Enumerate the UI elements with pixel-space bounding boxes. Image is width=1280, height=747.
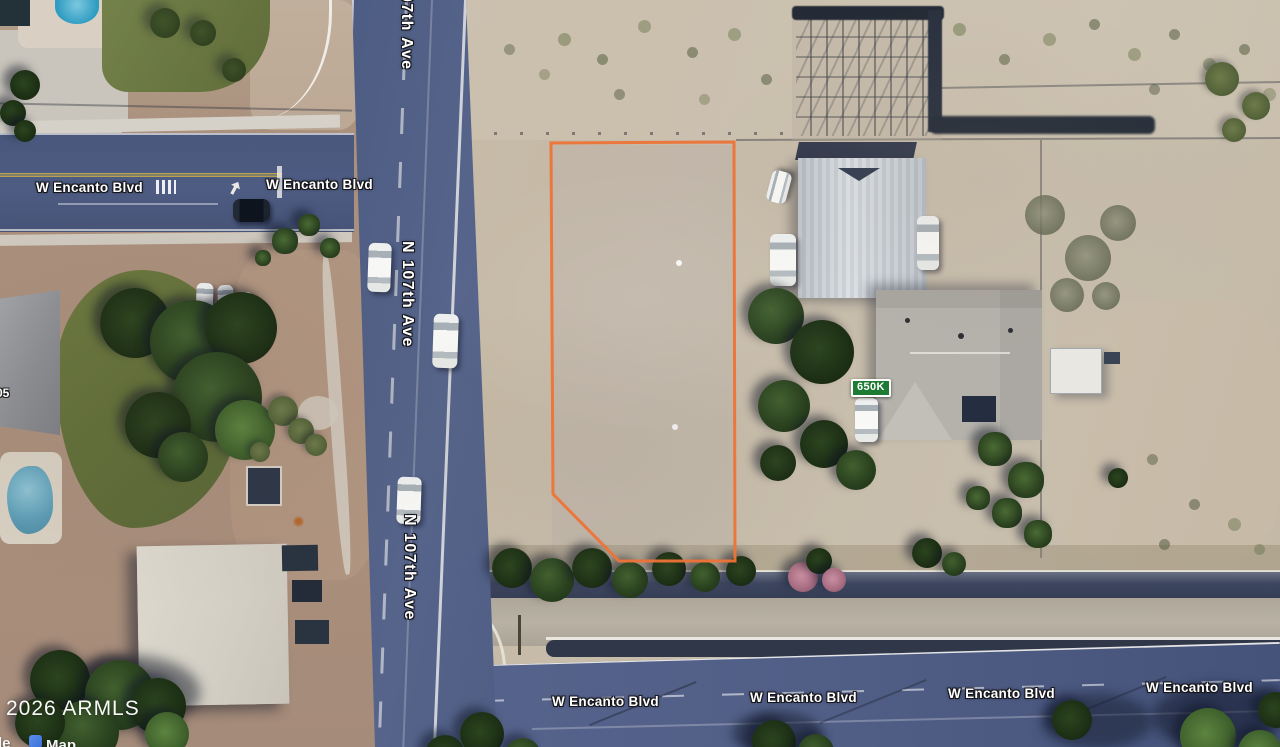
satellite-map[interactable]: W Encanto Blvd W Encanto Blvd 07th Ave N… bbox=[0, 0, 1280, 747]
price-badge[interactable]: 650K bbox=[851, 379, 891, 397]
map-pin-icon bbox=[29, 735, 42, 747]
street-label-encanto: W Encanto Blvd bbox=[750, 690, 857, 705]
street-label-107th: N 107th Ave bbox=[400, 514, 418, 621]
mls-watermark: 2026 ARMLS bbox=[6, 697, 140, 721]
street-label-encanto: W Encanto Blvd bbox=[266, 177, 373, 192]
attribution-partial-left: le bbox=[0, 735, 11, 747]
parked-van bbox=[855, 398, 878, 442]
street-label-107th-partial: 07th Ave bbox=[397, 0, 415, 71]
house-number-partial: 05 bbox=[0, 386, 9, 400]
street-label-encanto: W Encanto Blvd bbox=[1146, 680, 1253, 695]
property-outline bbox=[0, 0, 1280, 747]
street-label-encanto: W Encanto Blvd bbox=[36, 180, 143, 195]
street-label-encanto: W Encanto Blvd bbox=[948, 686, 1055, 701]
street-label-encanto: W Encanto Blvd bbox=[552, 694, 659, 709]
street-label-107th: N 107th Ave bbox=[398, 241, 416, 348]
attribution-partial-right: Map bbox=[46, 737, 76, 747]
